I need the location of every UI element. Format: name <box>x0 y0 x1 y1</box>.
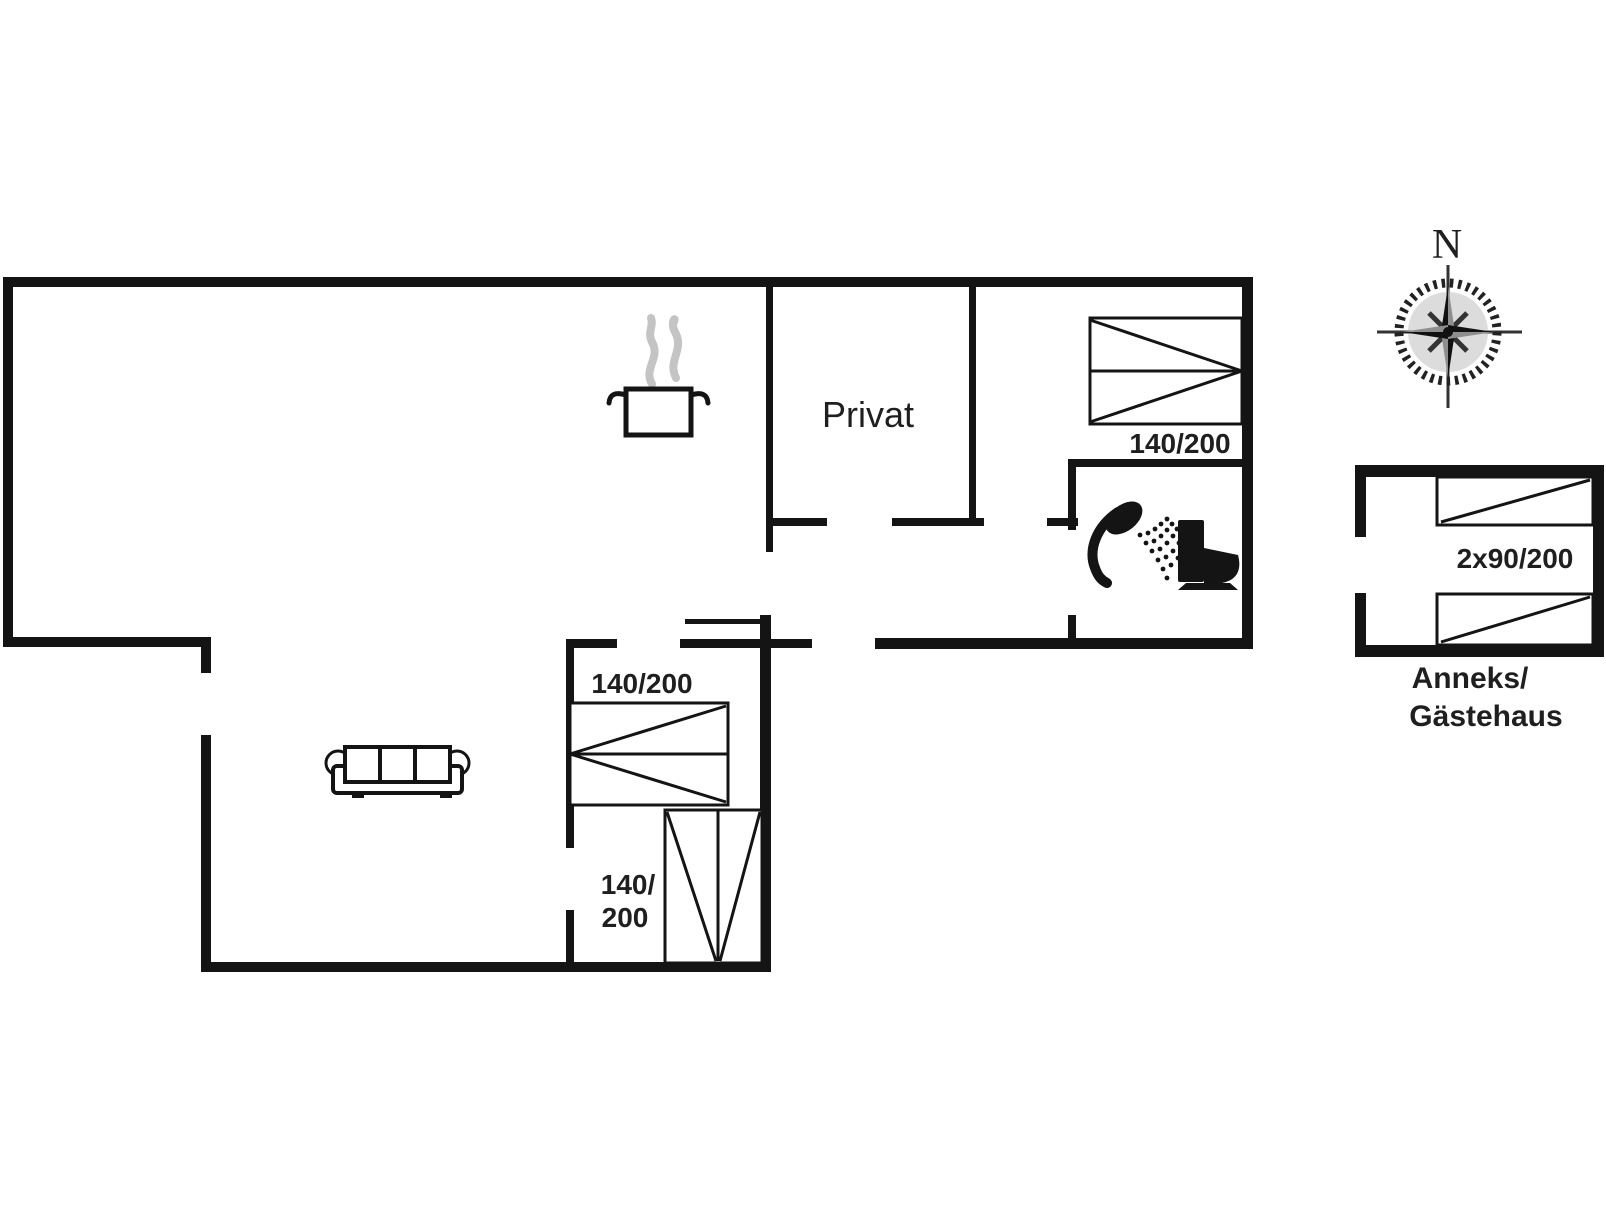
main-building-walls <box>3 277 1253 972</box>
annex-bed-size-label: 2x90/200 <box>1457 543 1574 574</box>
door-leaf <box>685 619 766 624</box>
privat-room-label: Privat <box>822 394 914 435</box>
annex-name-line2: Gästehaus <box>1409 700 1562 733</box>
steam-icon <box>649 318 678 384</box>
annex-name-line1: Anneks/ <box>1412 662 1529 695</box>
sofa-icon <box>326 747 469 798</box>
single-bed-icon-annex-bottom <box>1437 594 1593 645</box>
double-bed-icon-middle <box>570 703 728 805</box>
toilet-icon <box>1178 520 1239 590</box>
shower-icon <box>1093 495 1182 583</box>
shower-spray-dots <box>1138 517 1182 581</box>
bed-size-label-middle: 140/200 <box>591 668 692 699</box>
compass-rose-icon <box>1377 265 1522 408</box>
floor-plan-page: 140/200 140/200 140/ 200 Privat <box>0 0 1606 1205</box>
bed-size-label-bottom-line1: 140/ <box>601 869 656 900</box>
double-bed-icon-top-right <box>1090 318 1242 424</box>
double-bed-icon-bottom <box>665 810 762 963</box>
bed-size-label-top-right: 140/200 <box>1129 428 1230 459</box>
cooking-pot-icon <box>609 318 708 435</box>
compass-north-label: N <box>1432 222 1462 268</box>
bed-size-label-bottom-line2: 200 <box>602 902 649 933</box>
floor-plan-drawing: 140/200 140/200 140/ 200 Privat <box>0 0 1606 1205</box>
single-bed-icon-annex-top <box>1437 477 1593 525</box>
